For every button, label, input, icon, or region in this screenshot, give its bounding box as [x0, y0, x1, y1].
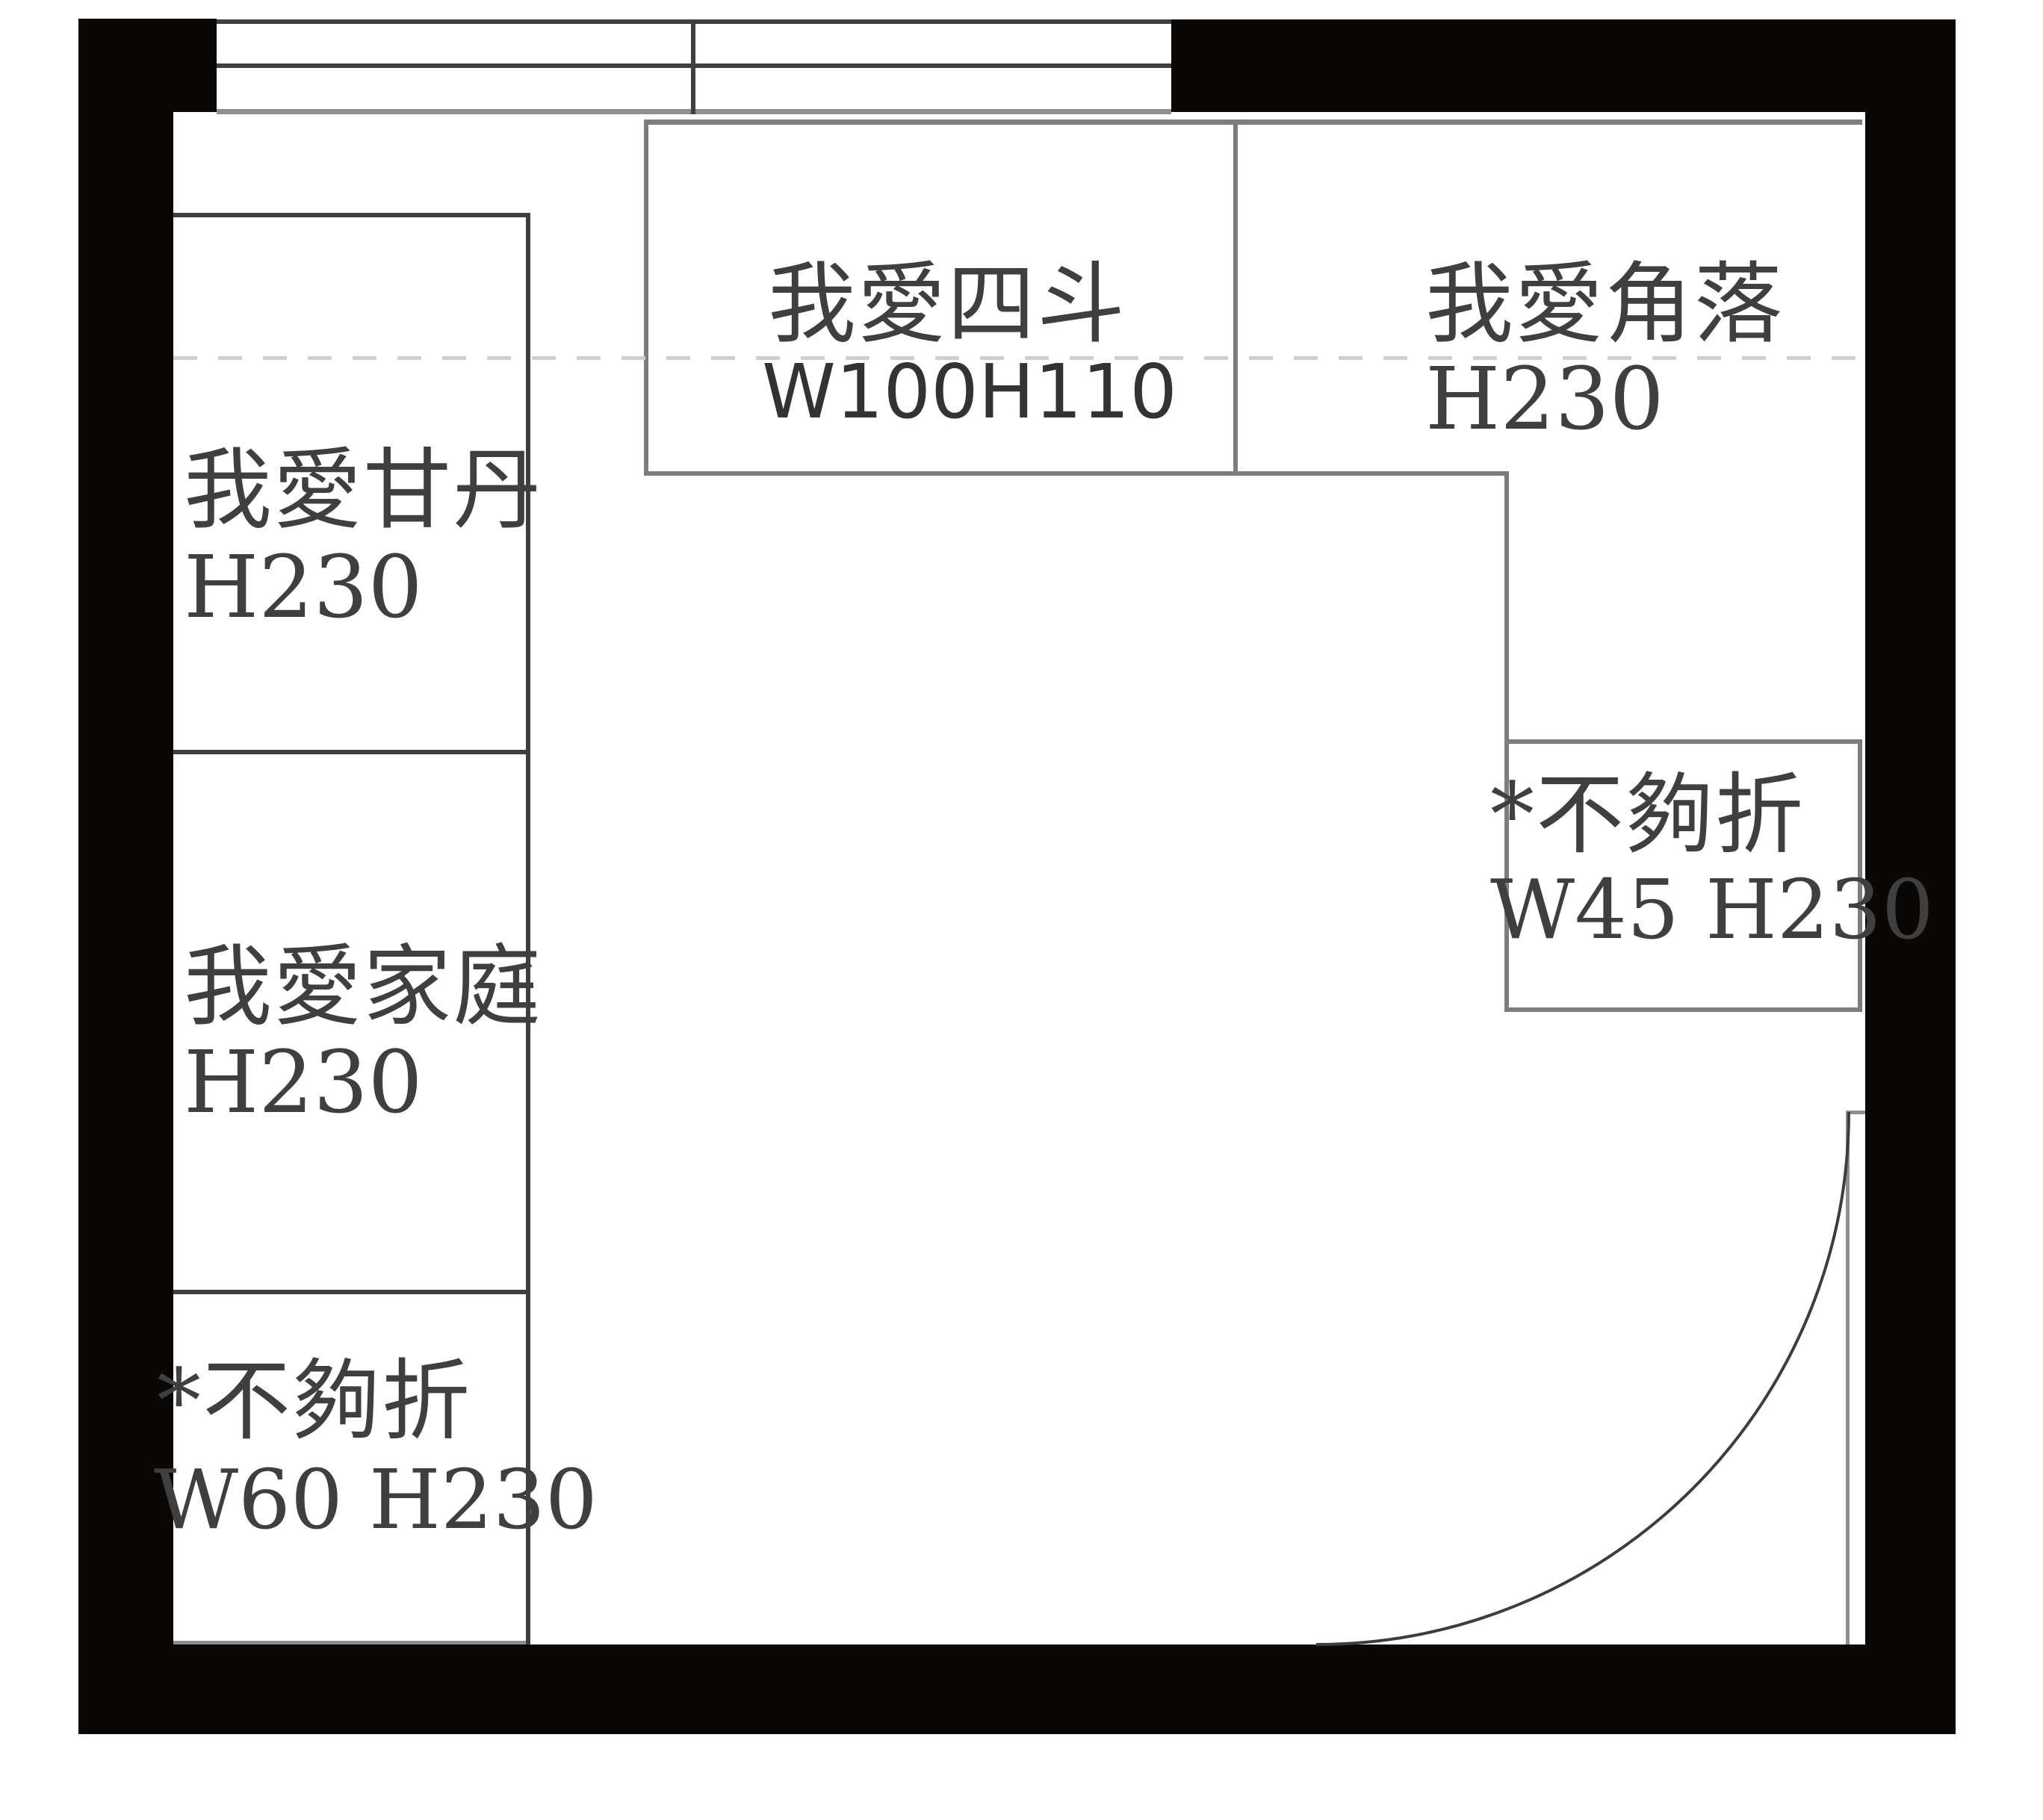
top-boxes-divider [1233, 119, 1238, 476]
cabinet-left-bottom-dims: W60 H230 [154, 1459, 598, 1541]
floor-plan: 我愛甘丹 H230 我愛家庭 H230 *不夠折 W60 H230 我愛四斗 W… [0, 0, 2043, 1820]
cabinet-left-top-label: 我愛甘丹 [184, 446, 542, 534]
left-column-top-edge [173, 213, 530, 217]
left-column-divider-1 [173, 750, 526, 754]
cabinet-left-middle-dims: H230 [184, 1040, 423, 1126]
cabinet-top-right-label: 我愛角落 [1425, 260, 1784, 348]
right-box-top-edge [1504, 739, 1862, 744]
cabinet-left-middle-label: 我愛家庭 [184, 942, 542, 1031]
wall-top-right [1171, 19, 1956, 112]
right-box-bottom-edge [1504, 1007, 1862, 1012]
cabinet-left-top-dims: H230 [184, 545, 423, 631]
left-column-divider-2 [173, 1290, 526, 1294]
cabinet-top-center-dims: W100H110 [762, 355, 1177, 429]
top-center-box-left-edge [644, 119, 648, 476]
cabinet-right-label: *不夠折 [1490, 771, 1805, 859]
top-center-box-bottom-edge [644, 471, 1509, 476]
cabinet-left-bottom-label: *不夠折 [157, 1357, 471, 1445]
wall-top-left-step [173, 19, 217, 112]
cabinet-top-center-label: 我愛四斗 [768, 260, 1126, 348]
door-swing-arc [1313, 1108, 1853, 1647]
corner-box-left-edge [1504, 471, 1509, 742]
wall-bottom [78, 1644, 1956, 1734]
left-column-bottom-edge [173, 1641, 526, 1644]
cabinet-top-right-dims: H230 [1425, 357, 1664, 443]
window-mullion-line [691, 19, 695, 114]
top-boxes-top-edge [644, 119, 1862, 125]
cabinet-right-dims: W45 H230 [1490, 869, 1934, 951]
left-column-right-edge [526, 213, 530, 1644]
